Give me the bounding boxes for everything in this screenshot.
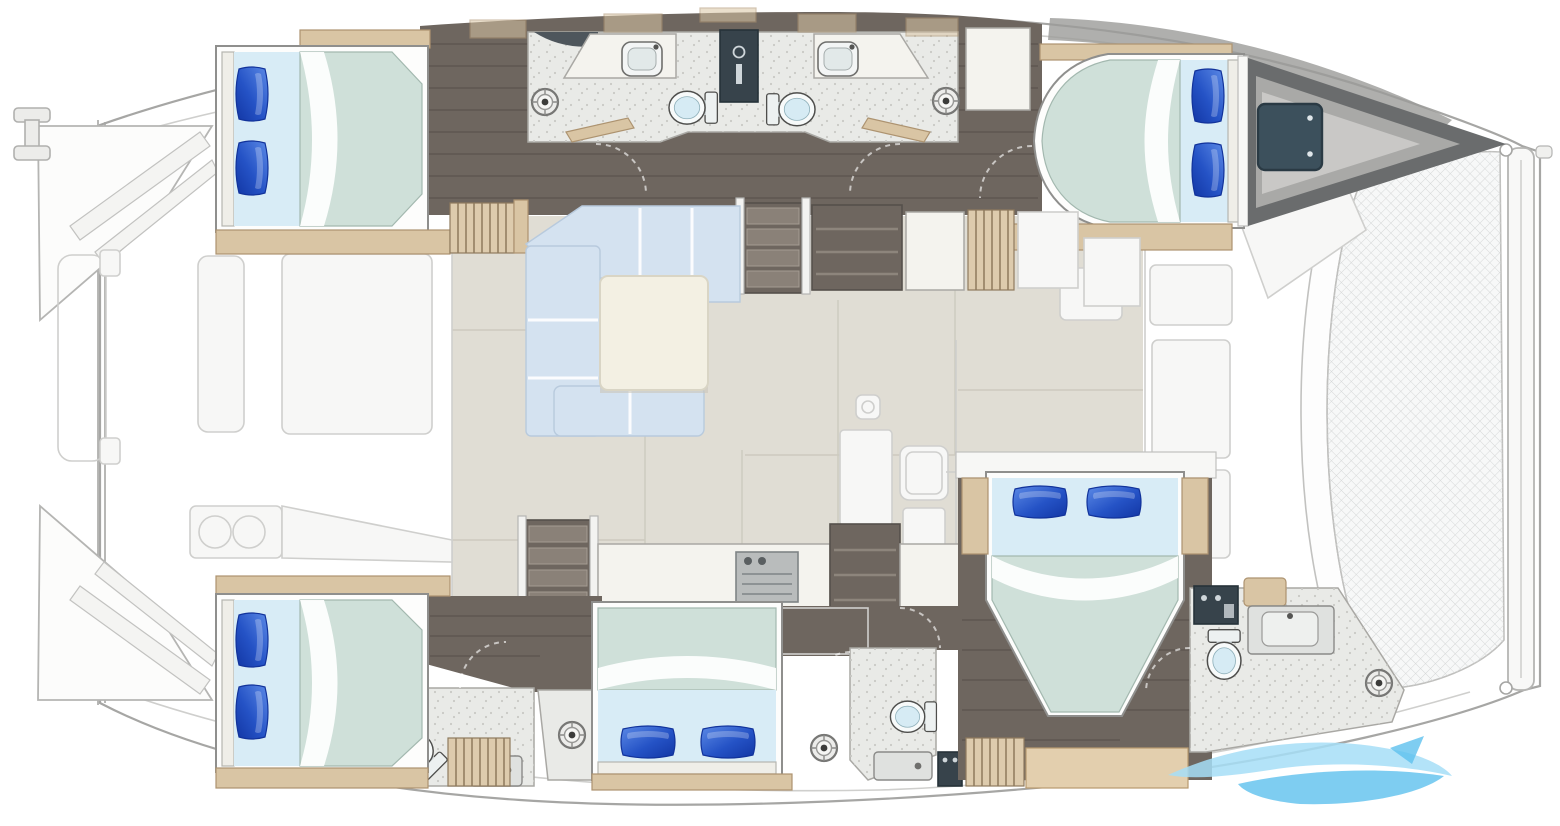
ensuite-teak-grate: [1244, 578, 1286, 606]
cockpit-sink-left: [199, 516, 231, 548]
foredeck-locker-2: [1152, 340, 1230, 458]
companionway-stairs-port: [736, 198, 810, 294]
locker-post: [514, 200, 528, 253]
forepeak-hatch: [1258, 104, 1322, 170]
mid-head-vanity: [874, 752, 932, 780]
head-toilet-left: [669, 91, 717, 124]
head-sink-right: [818, 42, 858, 76]
head-toilet-right: [767, 93, 815, 126]
storage-cabinet-aft: [830, 524, 900, 618]
headboard: [222, 600, 234, 766]
roller-locker-owner: [966, 738, 1024, 786]
pillow: [1192, 143, 1224, 197]
wardrobe-cabinet: [966, 28, 1030, 110]
galley-counter-aft-2: [900, 544, 962, 610]
yacht-floor-plan: [0, 0, 1560, 826]
roller-locker-stbd-aft: [448, 738, 510, 786]
shower-drain-port-right: [933, 88, 959, 114]
berth-shelf-bottom: [216, 768, 428, 788]
hatch-hinge-dot: [1307, 151, 1313, 157]
bow-fitting-bottom: [1500, 682, 1512, 694]
pillow: [236, 613, 268, 667]
nightstand-right: [1182, 478, 1208, 554]
pillow: [1192, 69, 1224, 123]
pillow: [621, 726, 675, 758]
stove-top: [736, 552, 798, 602]
pillow: [1013, 486, 1067, 518]
pillow: [1087, 486, 1141, 518]
owner-teak-sole: [1026, 748, 1188, 788]
fridge-cabinet: [1084, 238, 1140, 306]
mid-head-faucet: [915, 763, 922, 770]
davit-mount-top: [100, 250, 120, 276]
ensuite-faucet: [1287, 613, 1293, 619]
bow-fitting-top: [1500, 144, 1512, 156]
mid-head-toilet: [890, 701, 936, 732]
deck-cabinet-2: [1018, 212, 1078, 288]
ensuite-toilet: [1207, 630, 1241, 680]
berth-shelf-bottom: [592, 774, 792, 790]
headboard: [598, 762, 776, 774]
roller-locker-deck: [968, 210, 1014, 290]
cockpit-sink-right: [233, 516, 265, 548]
shower-column: [720, 30, 758, 102]
pillow: [236, 67, 268, 121]
cockpit-bench: [198, 256, 244, 432]
bowsprit-fitting: [1536, 146, 1552, 158]
roller-locker: [450, 203, 514, 253]
forepeak-bulkhead: [1238, 56, 1248, 226]
galley-tall-cabinet: [840, 430, 892, 526]
shower-drain-mid-head: [811, 735, 837, 761]
shower-drain-ensuite: [1366, 670, 1392, 696]
pillow: [236, 685, 268, 739]
galley-round-sink: [856, 395, 880, 419]
storage-cabinet-top: [812, 205, 902, 290]
davit-mount-bottom: [100, 438, 120, 464]
pillow: [701, 726, 755, 758]
head-sink-left: [622, 42, 662, 76]
berth-shelf-bottom: [216, 230, 450, 254]
cockpit-table: [282, 254, 432, 434]
shower-drain-port-left: [532, 89, 558, 115]
salon-table: [600, 276, 708, 393]
nightstand-left: [962, 478, 988, 554]
foredeck-locker-1: [1150, 265, 1232, 325]
stbd-aft-cabin-bed: [216, 594, 428, 772]
shower-drain-stbd-aft: [559, 722, 585, 748]
mid-cabin-bed: [592, 602, 782, 780]
pillow: [236, 141, 268, 195]
deck-cabinet-1: [906, 212, 964, 290]
hatch-hinge-dot: [1307, 115, 1313, 121]
headboard: [222, 52, 234, 226]
